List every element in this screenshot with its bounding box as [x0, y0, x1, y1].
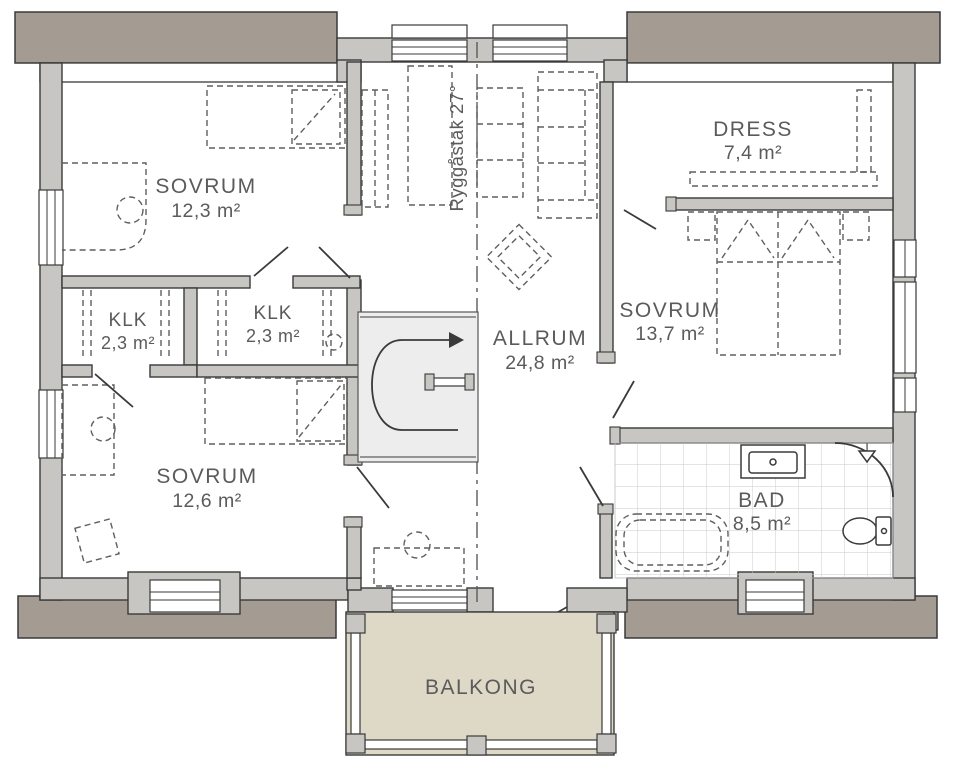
- bedroom3-furniture: [688, 212, 869, 355]
- label-closet2-name: KLK: [254, 303, 293, 324]
- window-bottom-left: [128, 572, 240, 614]
- floor-plan-canvas: SOVRUM 12,3 m² KLK 2,3 m² KLK 2,3 m² SOV…: [0, 0, 960, 771]
- label-livingroom-name: ALLRUM: [493, 327, 587, 350]
- label-bedroom3-area: 13,7 m²: [635, 323, 705, 345]
- window-left-lower: [39, 390, 63, 458]
- door-bathroom: [580, 467, 603, 506]
- label-closet1-name: KLK: [109, 310, 148, 331]
- label-bathroom-name: BAD: [738, 489, 786, 512]
- label-ridge: Ryggåstak 27°: [446, 84, 467, 211]
- label-bedroom1-name: SOVRUM: [155, 175, 256, 198]
- label-closet1-area: 2,3 m²: [101, 333, 155, 353]
- exterior-wall-bands: [40, 63, 893, 82]
- door-dress: [624, 210, 656, 229]
- label-dress-name: DRESS: [713, 118, 793, 141]
- sink: [741, 445, 805, 478]
- staircase: [358, 312, 478, 462]
- label-bedroom2-name: SOVRUM: [156, 465, 257, 488]
- toilet: [843, 517, 891, 545]
- label-bedroom3-name: SOVRUM: [619, 299, 720, 322]
- label-closet2-area: 2,3 m²: [246, 326, 300, 346]
- door-closet2: [254, 247, 288, 276]
- bedroom1-furniture: [62, 86, 345, 250]
- window-top-left: [392, 25, 467, 61]
- label-bathroom-area: 8,5 m²: [733, 513, 791, 535]
- door-bedroom2: [357, 467, 389, 508]
- label-dress-area: 7,4 m²: [724, 142, 782, 164]
- label-balcony: BALKONG: [425, 676, 537, 699]
- window-right-group: [894, 240, 916, 412]
- window-left-upper: [39, 190, 63, 265]
- door-bedroom3: [613, 381, 634, 418]
- label-livingroom-area: 24,8 m²: [505, 352, 575, 374]
- window-balcony: [392, 590, 467, 610]
- floor-plan: SOVRUM 12,3 m² KLK 2,3 m² KLK 2,3 m² SOV…: [0, 0, 960, 771]
- door-closet1: [95, 374, 133, 407]
- door-bedroom1: [319, 247, 350, 278]
- label-bedroom1-area: 12,3 m²: [171, 200, 241, 222]
- label-bedroom2-area: 12,6 m²: [172, 490, 242, 512]
- window-top-right: [493, 25, 567, 61]
